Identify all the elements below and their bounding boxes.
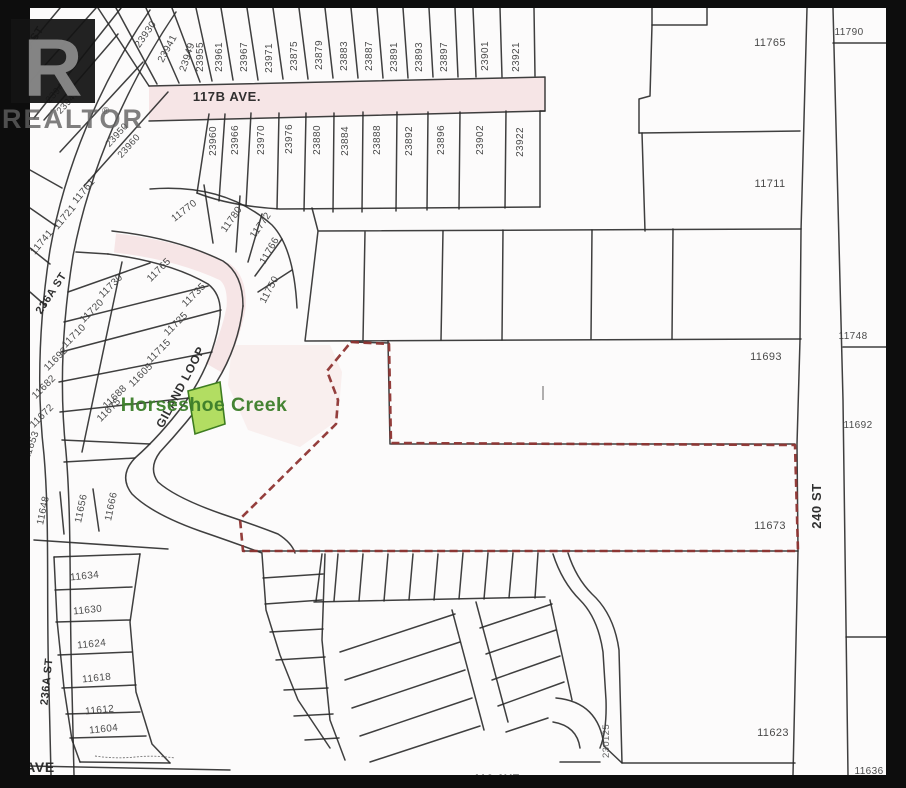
- lot-label: 23955: [195, 42, 206, 72]
- lot-label: 11673: [754, 520, 786, 532]
- lot-label: 23897: [439, 42, 450, 72]
- lot-label: 23893: [414, 42, 425, 72]
- street-label: 240 ST: [809, 483, 824, 529]
- lot-label: 23966: [230, 125, 241, 155]
- lot-label: 23970: [256, 125, 267, 155]
- lot-label: 11765: [754, 37, 786, 49]
- lot-label: 11693: [750, 351, 782, 363]
- lot-label: 11790: [834, 27, 863, 38]
- lot-label: 23891: [389, 42, 400, 72]
- realtor-logo-text: REALTOR: [2, 104, 144, 134]
- street-label: 117B AVE.: [193, 89, 261, 104]
- lot-label: 11692: [843, 420, 872, 431]
- map-canvas: 117B AVE.240 ST236A ST236A STGILAND LOOP…: [0, 0, 906, 788]
- lot-label: 11623: [757, 727, 789, 739]
- lot-label: 23888: [372, 125, 383, 155]
- lot-label: 23879: [314, 40, 325, 70]
- lot-label: 23883: [339, 41, 350, 71]
- plan-label: 230125: [601, 724, 612, 758]
- lot-label: 23922: [515, 127, 526, 157]
- lot-label: 23892: [404, 126, 415, 156]
- realtor-logo-letter: R: [23, 23, 82, 114]
- lot-label: 23902: [475, 125, 486, 155]
- lot-label: 23971: [264, 43, 275, 73]
- lot-label: 23901: [480, 41, 491, 71]
- lot-label: 23896: [436, 125, 447, 155]
- lot-label: 23921: [511, 42, 522, 72]
- lot-label: 23884: [340, 126, 351, 156]
- lot-label: 11711: [755, 178, 786, 190]
- creek-label: Horseshoe Creek: [121, 394, 287, 416]
- lot-label: 23961: [214, 42, 225, 72]
- lot-label: 23880: [312, 125, 323, 155]
- lot-label: 23967: [239, 42, 250, 72]
- lot-label: 23960: [208, 126, 219, 156]
- lot-label: 23887: [364, 41, 375, 71]
- plat-map-screenshot: 117B AVE.240 ST236A ST236A STGILAND LOOP…: [0, 0, 906, 788]
- lot-label: 11748: [838, 331, 867, 342]
- lot-label: 23875: [289, 41, 300, 71]
- lot-label: 23976: [284, 124, 295, 154]
- registered-mark-icon: ®: [102, 106, 111, 117]
